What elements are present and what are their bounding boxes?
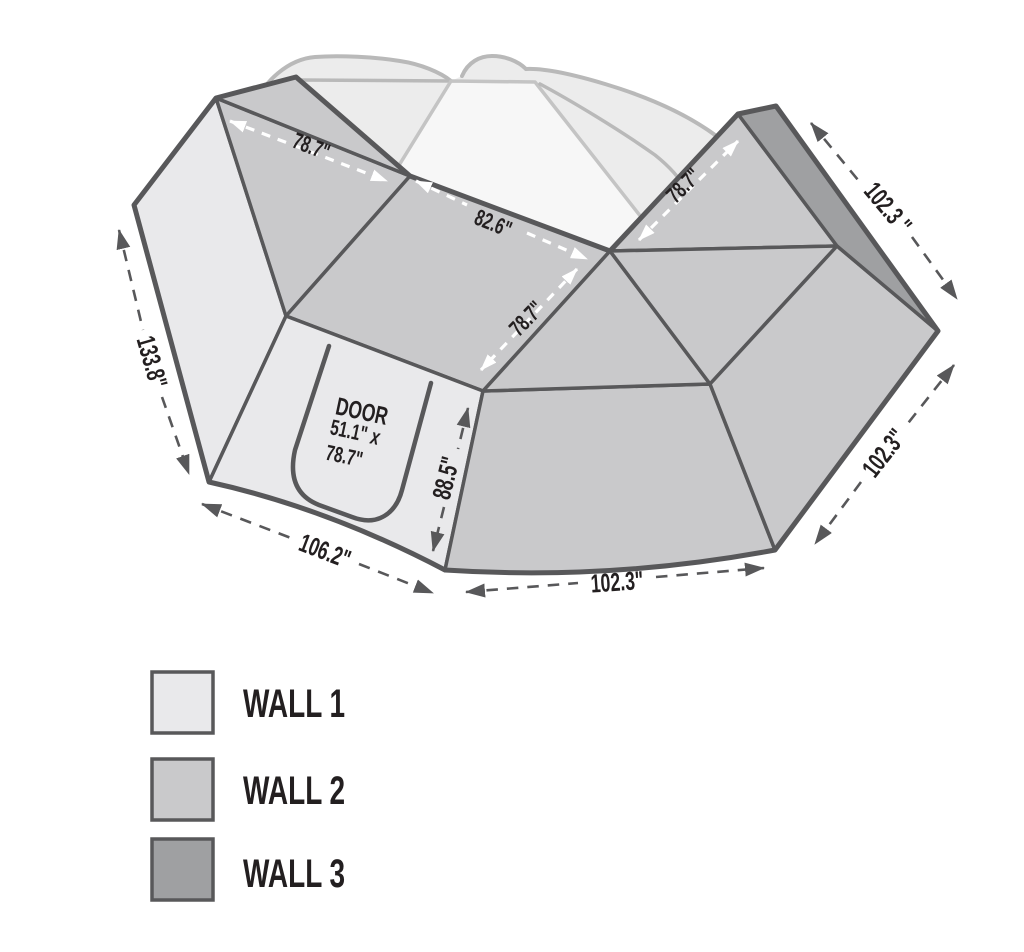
svg-text:106.2": 106.2" — [295, 528, 355, 574]
svg-text:WALL 1: WALL 1 — [243, 682, 345, 726]
svg-text:WALL 3: WALL 3 — [243, 852, 345, 896]
svg-text:102.3": 102.3" — [590, 566, 645, 599]
svg-text:WALL 2: WALL 2 — [243, 769, 345, 813]
svg-text:133.8": 133.8" — [131, 333, 174, 392]
